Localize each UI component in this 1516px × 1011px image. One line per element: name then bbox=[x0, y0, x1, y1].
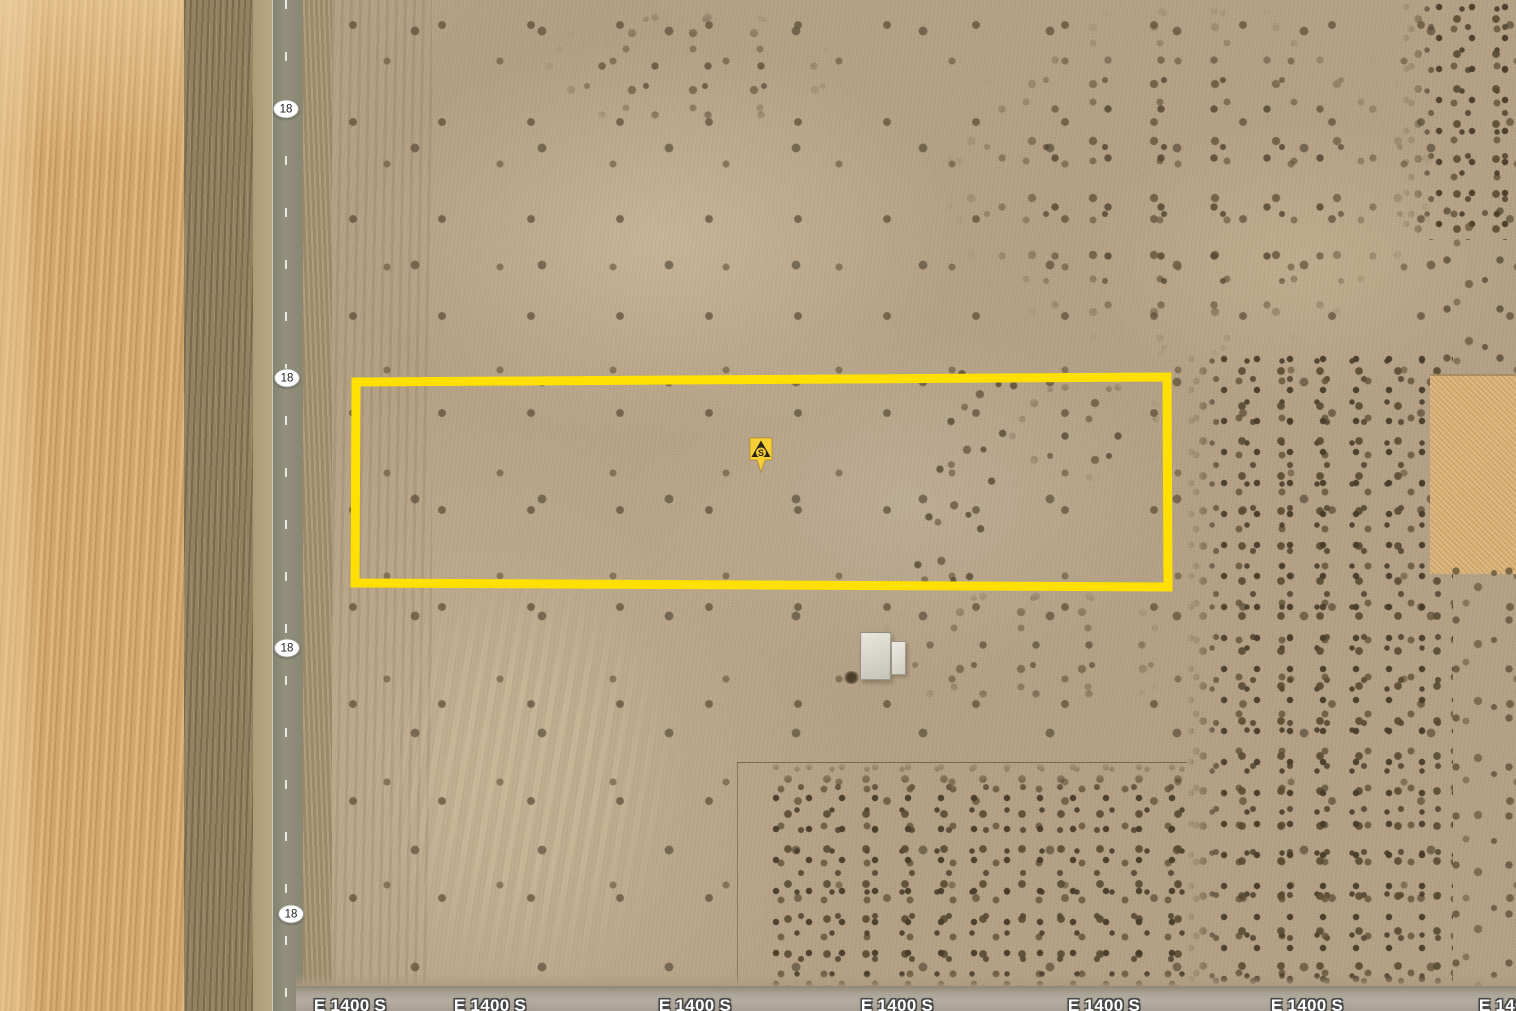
road-label-e1400s-4: E 1400 S bbox=[861, 996, 933, 1011]
pin-letter: S bbox=[758, 448, 764, 458]
road-label-e1400s-2: E 1400 S bbox=[454, 996, 526, 1011]
road-label-e1400s-1: E 1400 S bbox=[314, 996, 386, 1011]
route-shield-18-4: 18 bbox=[278, 905, 304, 924]
property-pin-marker[interactable]: S bbox=[750, 438, 772, 472]
road-label-e1400s-7: E 1400 S bbox=[1479, 996, 1516, 1011]
road-label-e1400s-6: E 1400 S bbox=[1271, 996, 1343, 1011]
route-shield-18-1: 18 bbox=[273, 100, 299, 119]
route-shield-18-3: 18 bbox=[274, 639, 300, 658]
parcel-boundary-outline[interactable] bbox=[355, 377, 1168, 587]
road-label-e1400s-5: E 1400 S bbox=[1068, 996, 1140, 1011]
road-label-e1400s-3: E 1400 S bbox=[659, 996, 731, 1011]
satellite-map-canvas[interactable]: S 18 18 18 18 E 1400 S E 1400 S E 1400 S… bbox=[0, 0, 1516, 1011]
route-shield-18-2: 18 bbox=[274, 369, 300, 388]
map-overlays: S bbox=[0, 0, 1516, 1011]
